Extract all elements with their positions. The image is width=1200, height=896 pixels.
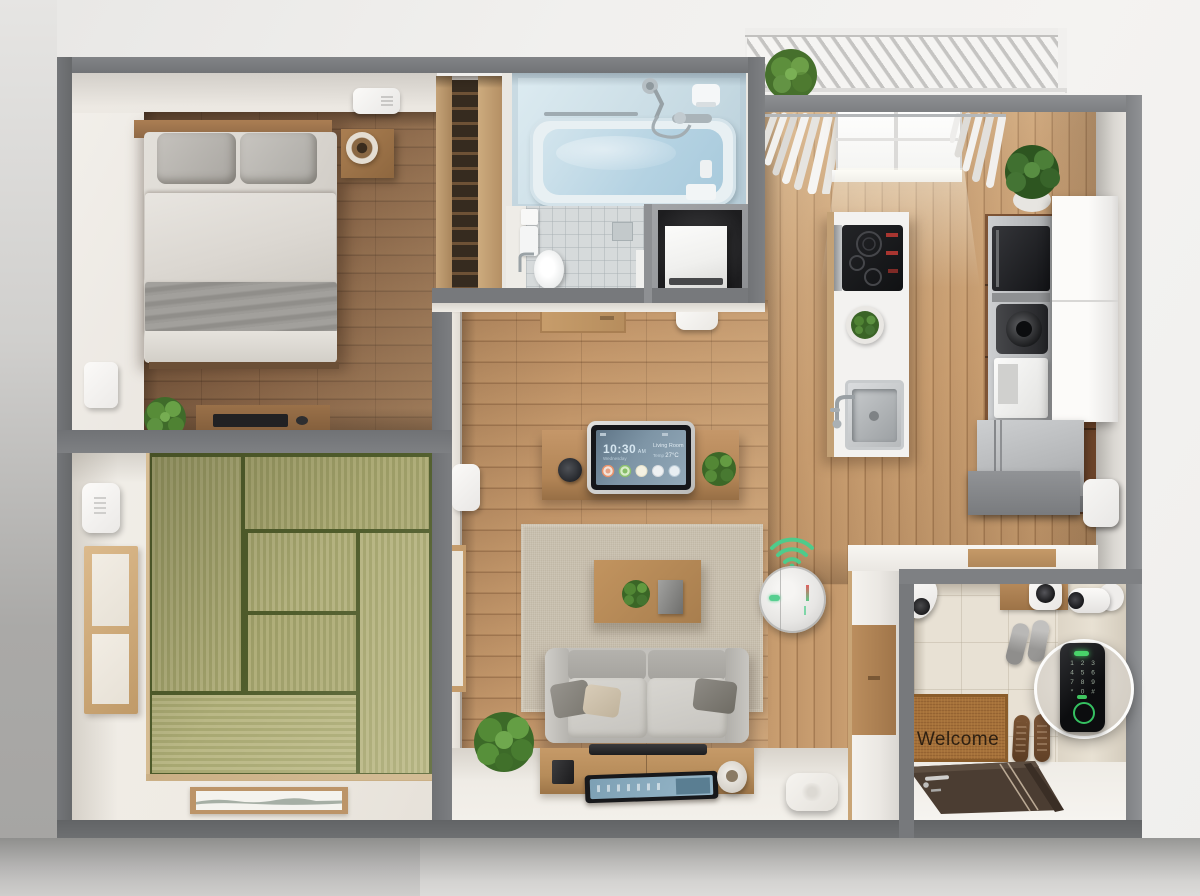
svg-text:7: 7 (1070, 679, 1074, 686)
svg-text:9: 9 (1091, 679, 1095, 686)
svg-text:3: 3 (1091, 660, 1095, 667)
svg-text:8: 8 (1081, 679, 1085, 686)
svg-text:1: 1 (1070, 660, 1074, 667)
svg-text:#: # (1091, 689, 1095, 696)
svg-text:4: 4 (1070, 670, 1074, 677)
svg-text:6: 6 (1091, 670, 1095, 677)
svg-text:*: * (1071, 689, 1074, 696)
svg-text:5: 5 (1081, 670, 1085, 677)
svg-text:2: 2 (1081, 660, 1085, 667)
